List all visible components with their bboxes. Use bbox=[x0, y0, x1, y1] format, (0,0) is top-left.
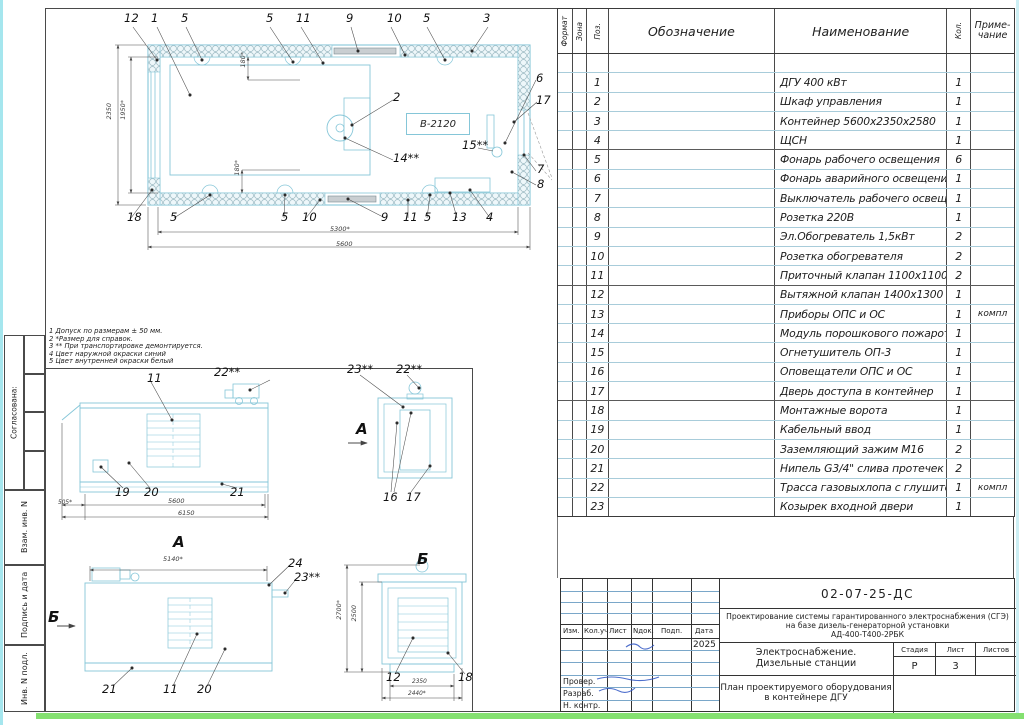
cell-note bbox=[971, 228, 1014, 246]
cell-pos: 15 bbox=[587, 343, 609, 361]
cell-pos bbox=[587, 54, 609, 72]
dim-label: 2500 bbox=[351, 605, 358, 622]
table-row: 14 Модуль порошкового пожаротушения 1 bbox=[558, 324, 1014, 343]
cell-note bbox=[971, 208, 1014, 226]
table-row: 5 Фонарь рабочего освещения 6 bbox=[558, 150, 1014, 169]
cell-name: Дверь доступа в контейнер bbox=[775, 382, 947, 400]
col-header-designation: Обозначение bbox=[648, 24, 735, 39]
cell-pos: 8 bbox=[587, 208, 609, 226]
cell-designation bbox=[609, 459, 775, 477]
cell-zone bbox=[573, 93, 587, 111]
table-row: 13 Приборы ОПС и ОС 1 компл bbox=[558, 305, 1014, 324]
cell-format bbox=[558, 363, 573, 381]
notes-block: 1 Допуск по размерам ± 50 мм. 2 *Размер … bbox=[49, 328, 203, 366]
cell-pos: 12 bbox=[587, 286, 609, 304]
cell-name: Козырек входной двери bbox=[775, 498, 947, 516]
table-row: 20 Заземляющий зажим М16 2 bbox=[558, 440, 1014, 459]
cell-designation bbox=[609, 266, 775, 284]
table-row: 12 Вытяжной клапан 1400х1300 1 bbox=[558, 286, 1014, 305]
cell-format bbox=[558, 479, 573, 497]
titleblock-line bbox=[561, 591, 719, 592]
cell-qty: 2 bbox=[947, 266, 971, 284]
cell-zone bbox=[573, 305, 587, 323]
cell-format bbox=[558, 170, 573, 188]
dim-label: 5600 bbox=[336, 241, 353, 248]
plan-callout: 3 bbox=[483, 13, 490, 25]
stamp-agreed-label: Согласована: bbox=[5, 336, 23, 489]
cell-designation bbox=[609, 440, 775, 458]
plan-callout: 13 bbox=[452, 212, 467, 224]
table-row: 22 Трасса газовыхлопа с глушителем 1 ком… bbox=[558, 479, 1014, 498]
plan-callout: 5 bbox=[281, 212, 288, 224]
table-row: 11 Приточный клапан 1100х1100 2 bbox=[558, 266, 1014, 285]
plan-callout: 5 bbox=[170, 212, 177, 224]
cell-pos: 5 bbox=[587, 150, 609, 168]
cell-pos: 13 bbox=[587, 305, 609, 323]
cell-note bbox=[971, 324, 1014, 342]
row-razrab: Разраб. bbox=[563, 690, 594, 698]
cell-designation bbox=[609, 189, 775, 207]
table-row: 18 Монтажные ворота 1 bbox=[558, 401, 1014, 420]
scan-edge-bottom bbox=[36, 713, 1024, 719]
cell-qty: 2 bbox=[947, 247, 971, 265]
cell-designation bbox=[609, 93, 775, 111]
table-row: 9 Эл.Обогреватель 1,5кВт 2 bbox=[558, 228, 1014, 247]
cell-note bbox=[971, 247, 1014, 265]
cell-designation bbox=[609, 208, 775, 226]
cell-note bbox=[971, 93, 1014, 111]
cell-name: Приборы ОПС и ОС bbox=[775, 305, 947, 323]
view-callout: 21 bbox=[230, 487, 245, 499]
cell-zone bbox=[573, 247, 587, 265]
cell-qty: 1 bbox=[947, 401, 971, 419]
plan-callout: 11 bbox=[296, 13, 311, 25]
cell-zone bbox=[573, 382, 587, 400]
cell-designation bbox=[609, 247, 775, 265]
elevation-views-drawing bbox=[45, 368, 473, 712]
cell-qty: 1 bbox=[947, 208, 971, 226]
dim-label: 505* bbox=[58, 501, 72, 507]
plan-callout: 5 bbox=[424, 212, 431, 224]
cell-pos: 3 bbox=[587, 112, 609, 130]
equipment-label: В-2120 bbox=[406, 113, 470, 135]
stamp-empty-cell bbox=[24, 374, 45, 412]
stamp-vzam-cell: Взам. инв. N bbox=[4, 490, 45, 565]
cell-zone bbox=[573, 421, 587, 439]
plan-callout: 18 bbox=[127, 212, 142, 224]
dim-label: 2700* bbox=[336, 600, 343, 620]
cell-name bbox=[775, 54, 947, 72]
cell-format bbox=[558, 440, 573, 458]
cell-designation bbox=[609, 54, 775, 72]
cell-qty: 1 bbox=[947, 131, 971, 149]
cell-zone bbox=[573, 498, 587, 516]
cell-pos: 17 bbox=[587, 382, 609, 400]
table-row: 8 Розетка 220В 1 bbox=[558, 208, 1014, 227]
cell-pos: 9 bbox=[587, 228, 609, 246]
doc-number: 02-07-25-ДС bbox=[719, 579, 1016, 609]
table-row: 15 Огнетушитель ОП-3 1 bbox=[558, 343, 1014, 362]
cell-name: Заземляющий зажим М16 bbox=[775, 440, 947, 458]
plan-callout: 7 bbox=[537, 164, 544, 176]
sheet-value: 3 bbox=[936, 657, 976, 676]
cell-designation bbox=[609, 421, 775, 439]
view-callout: 22** bbox=[396, 364, 422, 376]
cell-pos: 23 bbox=[587, 498, 609, 516]
cell-name: Эл.Обогреватель 1,5кВт bbox=[775, 228, 947, 246]
plan-callout: 11 bbox=[403, 212, 418, 224]
cell-pos: 10 bbox=[587, 247, 609, 265]
cell-qty: 6 bbox=[947, 150, 971, 168]
cell-zone bbox=[573, 150, 587, 168]
cell-zone bbox=[573, 401, 587, 419]
cell-name: Контейнер 5600х2350х2580 bbox=[775, 112, 947, 130]
col-list: Лист bbox=[609, 628, 627, 635]
project-line1: Проектирование системы гарантированного … bbox=[719, 612, 1016, 621]
cell-name: Модуль порошкового пожаротушения bbox=[775, 324, 947, 342]
cell-note bbox=[971, 54, 1014, 72]
section-line2: Дизельные станции bbox=[719, 658, 893, 669]
col-header-pos: Поз. bbox=[593, 23, 602, 40]
col-podp: Подп. bbox=[661, 628, 682, 635]
dim-label: 5600 bbox=[168, 498, 185, 505]
sheets-label: Листов bbox=[976, 643, 1016, 657]
cell-note bbox=[971, 459, 1014, 477]
col-data: Дата bbox=[695, 628, 713, 635]
plan-callout: 9 bbox=[381, 212, 388, 224]
cell-format bbox=[558, 131, 573, 149]
section-arrow-label: Б bbox=[48, 610, 59, 625]
plan-callout: 8 bbox=[537, 179, 544, 191]
view-callout: 19 bbox=[115, 487, 130, 499]
dim-label: 5300* bbox=[330, 226, 350, 233]
titleblock-line bbox=[561, 624, 719, 625]
cell-designation bbox=[609, 73, 775, 91]
cell-qty: 1 bbox=[947, 189, 971, 207]
cell-name: Трасса газовыхлопа с глушителем bbox=[775, 479, 947, 497]
view-callout: 11 bbox=[163, 684, 178, 696]
cell-note bbox=[971, 266, 1014, 284]
cell-note bbox=[971, 170, 1014, 188]
cell-name: Монтажные ворота bbox=[775, 401, 947, 419]
cell-name: Кабельный ввод bbox=[775, 421, 947, 439]
view-callout: 20 bbox=[144, 487, 159, 499]
section-cell: Электроснабжение. Дизельные станции bbox=[719, 643, 894, 676]
view-callout: 16 bbox=[383, 492, 398, 504]
cell-name: Шкаф управления bbox=[775, 93, 947, 111]
cell-name: ДГУ 400 кВт bbox=[775, 73, 947, 91]
dim-label: 180* bbox=[234, 160, 241, 176]
cell-name: Приточный клапан 1100х1100 bbox=[775, 266, 947, 284]
cell-format bbox=[558, 54, 573, 72]
cell-zone bbox=[573, 170, 587, 188]
scan-edge-right bbox=[1016, 0, 1019, 714]
cell-pos: 6 bbox=[587, 170, 609, 188]
cell-note bbox=[971, 286, 1014, 304]
cell-qty: 1 bbox=[947, 93, 971, 111]
table-row: 3 Контейнер 5600х2350х2580 1 bbox=[558, 112, 1014, 131]
cell-designation bbox=[609, 131, 775, 149]
cell-name: Огнетушитель ОП-3 bbox=[775, 343, 947, 361]
cell-zone bbox=[573, 73, 587, 91]
cell-qty: 1 bbox=[947, 73, 971, 91]
cell-designation bbox=[609, 363, 775, 381]
titleblock-line bbox=[561, 613, 719, 614]
col-ndok: Nдок. bbox=[633, 628, 654, 635]
sheet-title-line1: План проектируемого оборудования bbox=[719, 683, 893, 693]
stamp-inv-cell: Инв. N подл. bbox=[4, 645, 45, 712]
stage-value: Р bbox=[894, 657, 936, 676]
col-header-format: Формат bbox=[560, 16, 569, 46]
cell-format bbox=[558, 343, 573, 361]
approval-cell bbox=[894, 676, 1016, 713]
cell-format bbox=[558, 421, 573, 439]
cell-qty: 1 bbox=[947, 343, 971, 361]
cell-zone bbox=[573, 479, 587, 497]
cell-pos: 11 bbox=[587, 266, 609, 284]
cell-note bbox=[971, 150, 1014, 168]
note-line: 5 Цвет внутренней окраски белый bbox=[49, 358, 203, 366]
col-koluch: Кол.уч bbox=[584, 628, 608, 635]
cell-qty: 2 bbox=[947, 459, 971, 477]
cell-pos: 2 bbox=[587, 93, 609, 111]
cell-note: компл bbox=[971, 479, 1014, 497]
plan-callout: 5 bbox=[423, 13, 430, 25]
dim-label: 2350 bbox=[106, 103, 113, 120]
cell-qty: 1 bbox=[947, 479, 971, 497]
plan-callout: 17 bbox=[536, 95, 551, 107]
table-row: 21 Нипель G3/4" слива протечек 2 bbox=[558, 459, 1014, 478]
cell-pos: 1 bbox=[587, 73, 609, 91]
table-row: 6 Фонарь аварийного освещения 1 bbox=[558, 170, 1014, 189]
cell-format bbox=[558, 498, 573, 516]
cell-format bbox=[558, 459, 573, 477]
cell-zone bbox=[573, 343, 587, 361]
sheet-title-cell: План проектируемого оборудования в конте… bbox=[719, 676, 894, 713]
cell-designation bbox=[609, 305, 775, 323]
view-title: А bbox=[173, 535, 185, 550]
table-row: 1 ДГУ 400 кВт 1 bbox=[558, 73, 1014, 92]
cell-name: Розетка 220В bbox=[775, 208, 947, 226]
stage-label: Стадия bbox=[894, 643, 936, 657]
cell-zone bbox=[573, 324, 587, 342]
cell-name: Фонарь аварийного освещения bbox=[775, 170, 947, 188]
dim-label: 5140* bbox=[163, 556, 183, 563]
cell-name: Фонарь рабочего освещения bbox=[775, 150, 947, 168]
table-row: 17 Дверь доступа в контейнер 1 bbox=[558, 382, 1014, 401]
table-row bbox=[558, 54, 1014, 73]
plan-callout: 1 bbox=[151, 13, 158, 25]
col-header-name: Наименование bbox=[812, 24, 909, 39]
titleblock-line bbox=[561, 602, 719, 603]
view-callout: 17 bbox=[406, 492, 421, 504]
cell-qty: 2 bbox=[947, 440, 971, 458]
cell-name: Вытяжной клапан 1400х1300 bbox=[775, 286, 947, 304]
cell-qty: 1 bbox=[947, 170, 971, 188]
scan-edge-left bbox=[0, 0, 3, 725]
stamp-inv-label: Инв. N подл. bbox=[5, 646, 44, 711]
plan-callout: 5 bbox=[266, 13, 273, 25]
signature-ink bbox=[591, 637, 711, 709]
cell-designation bbox=[609, 170, 775, 188]
cell-pos: 18 bbox=[587, 401, 609, 419]
table-row: 23 Козырек входной двери 1 bbox=[558, 498, 1014, 516]
plan-callout: 15** bbox=[462, 140, 488, 152]
table-row: 4 ЩСН 1 bbox=[558, 131, 1014, 150]
cell-note bbox=[971, 401, 1014, 419]
cell-designation bbox=[609, 382, 775, 400]
col-header-qty: Кол. bbox=[954, 22, 963, 39]
cell-pos: 20 bbox=[587, 440, 609, 458]
view-callout: 22** bbox=[214, 367, 240, 379]
cell-qty: 1 bbox=[947, 498, 971, 516]
cell-zone bbox=[573, 228, 587, 246]
cell-note bbox=[971, 73, 1014, 91]
view-callout: 11 bbox=[147, 373, 162, 385]
cell-designation bbox=[609, 324, 775, 342]
stamp-empty-cell bbox=[24, 335, 45, 374]
plan-callout: 4 bbox=[486, 212, 493, 224]
view-callout: 21 bbox=[102, 684, 117, 696]
cell-pos: 21 bbox=[587, 459, 609, 477]
cell-qty: 2 bbox=[947, 228, 971, 246]
dim-label: 6150 bbox=[178, 510, 195, 517]
table-row: 7 Выключатель рабочего освещения 1 bbox=[558, 189, 1014, 208]
cell-format bbox=[558, 228, 573, 246]
section-line1: Электроснабжение. bbox=[719, 647, 893, 658]
view-callout: 20 bbox=[197, 684, 212, 696]
cell-format bbox=[558, 382, 573, 400]
cell-format bbox=[558, 93, 573, 111]
cell-designation bbox=[609, 286, 775, 304]
cell-format bbox=[558, 305, 573, 323]
view-callout: 24 bbox=[288, 558, 303, 570]
cell-designation bbox=[609, 479, 775, 497]
spec-rows: 1 ДГУ 400 кВт 1 2 Шкаф управления 1 bbox=[558, 54, 1014, 516]
frame-divider bbox=[557, 517, 558, 578]
cell-note bbox=[971, 498, 1014, 516]
drawing-sheet: Согласована: Взам. инв. N Подпись и дата… bbox=[0, 0, 1024, 725]
cell-qty: 1 bbox=[947, 382, 971, 400]
cell-name: Розетка обогревателя bbox=[775, 247, 947, 265]
cell-pos: 19 bbox=[587, 421, 609, 439]
dim-label: 2440* bbox=[408, 692, 426, 698]
dim-label: 1950* bbox=[120, 100, 127, 120]
cell-zone bbox=[573, 112, 587, 130]
col-izm: Изм. bbox=[563, 628, 579, 635]
view-callout: 12 bbox=[386, 672, 401, 684]
sheet-title-line2: в контейнере ДГУ bbox=[719, 693, 893, 703]
cell-zone bbox=[573, 286, 587, 304]
cell-qty: 1 bbox=[947, 363, 971, 381]
cell-format bbox=[558, 73, 573, 91]
cell-pos: 16 bbox=[587, 363, 609, 381]
plan-callout: 10 bbox=[302, 212, 317, 224]
stamp-sign-cell: Подпись и дата bbox=[4, 565, 45, 645]
cell-zone bbox=[573, 266, 587, 284]
cell-zone bbox=[573, 189, 587, 207]
cell-note bbox=[971, 382, 1014, 400]
cell-zone bbox=[573, 54, 587, 72]
specification-table: Формат Зона Поз. Обозначение Наименовани… bbox=[557, 8, 1015, 517]
section-arrow-label: А bbox=[356, 422, 368, 437]
cell-format bbox=[558, 150, 573, 168]
view-callout: 23** bbox=[347, 364, 373, 376]
view-callout: 23** bbox=[294, 572, 320, 584]
plan-callout: 9 bbox=[346, 13, 353, 25]
cell-designation bbox=[609, 401, 775, 419]
cell-designation bbox=[609, 150, 775, 168]
cell-qty: 1 bbox=[947, 286, 971, 304]
cell-qty: 1 bbox=[947, 112, 971, 130]
stamp-vzam-label: Взам. инв. N bbox=[5, 491, 44, 564]
cell-format bbox=[558, 112, 573, 130]
cell-note bbox=[971, 131, 1014, 149]
cell-zone bbox=[573, 208, 587, 226]
view-title: Б bbox=[417, 552, 428, 567]
title-block: Изм. Кол.уч Лист Nдок. Подп. Дата 2025 П… bbox=[560, 578, 1015, 712]
stamp-sign-label: Подпись и дата bbox=[5, 566, 44, 644]
project-title-cell: Проектирование системы гарантированного … bbox=[719, 609, 1016, 643]
project-line3: АД-400-Т400-2РБК bbox=[719, 630, 1016, 639]
stamp-empty-cell bbox=[24, 451, 45, 490]
table-row: 10 Розетка обогревателя 2 bbox=[558, 247, 1014, 266]
col-header-zone: Зона bbox=[575, 22, 584, 41]
cell-pos: 4 bbox=[587, 131, 609, 149]
cell-designation bbox=[609, 498, 775, 516]
cell-note: компл bbox=[971, 305, 1014, 323]
cell-name: Нипель G3/4" слива протечек bbox=[775, 459, 947, 477]
cell-name: Выключатель рабочего освещения bbox=[775, 189, 947, 207]
cell-qty bbox=[947, 54, 971, 72]
cell-pos: 22 bbox=[587, 479, 609, 497]
stamp-agreed-cell: Согласована: bbox=[4, 335, 24, 490]
cell-format bbox=[558, 189, 573, 207]
project-line2: на базе дизель-генераторной установки bbox=[719, 621, 1016, 630]
cell-format bbox=[558, 247, 573, 265]
spec-header: Формат Зона Поз. Обозначение Наименовани… bbox=[558, 9, 1014, 54]
plan-callout: 6 bbox=[536, 73, 543, 85]
plan-callout: 2 bbox=[393, 92, 400, 104]
cell-zone bbox=[573, 440, 587, 458]
plan-callout: 12 bbox=[124, 13, 139, 25]
sheets-value bbox=[976, 657, 1016, 676]
cell-qty: 1 bbox=[947, 324, 971, 342]
cell-format bbox=[558, 401, 573, 419]
view-callout: 18 bbox=[458, 672, 473, 684]
plan-callout: 10 bbox=[387, 13, 402, 25]
cell-format bbox=[558, 266, 573, 284]
cell-format bbox=[558, 208, 573, 226]
cell-note bbox=[971, 421, 1014, 439]
table-row: 16 Оповещатели ОПС и ОС 1 bbox=[558, 363, 1014, 382]
table-row: 2 Шкаф управления 1 bbox=[558, 93, 1014, 112]
cell-format bbox=[558, 286, 573, 304]
table-row: 19 Кабельный ввод 1 bbox=[558, 421, 1014, 440]
cell-zone bbox=[573, 363, 587, 381]
dim-label: 2350 bbox=[412, 680, 427, 686]
plan-callout: 14** bbox=[393, 153, 419, 165]
cell-zone bbox=[573, 459, 587, 477]
cell-note bbox=[971, 343, 1014, 361]
cell-name: ЩСН bbox=[775, 131, 947, 149]
cell-designation bbox=[609, 228, 775, 246]
col-header-note: Приме- чание bbox=[975, 21, 1011, 41]
cell-name: Оповещатели ОПС и ОС bbox=[775, 363, 947, 381]
sheet-label: Лист bbox=[936, 643, 976, 657]
cell-format bbox=[558, 324, 573, 342]
cell-note bbox=[971, 112, 1014, 130]
